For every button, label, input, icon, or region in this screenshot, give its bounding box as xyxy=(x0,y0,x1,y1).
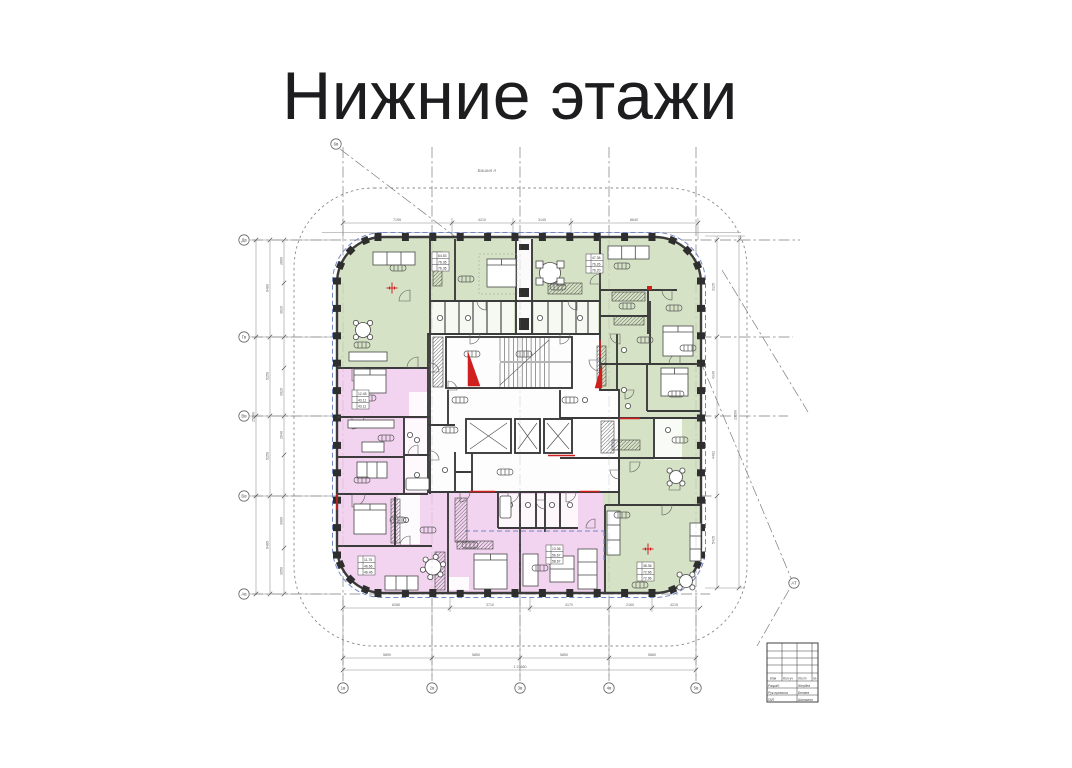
svg-text:Беляев: Беляев xyxy=(798,691,809,695)
svg-text:2160: 2160 xyxy=(626,603,634,607)
svg-text:Шаталов: Шаталов xyxy=(798,698,813,702)
svg-text:4462: 4462 xyxy=(712,451,716,459)
svg-text:58.67: 58.67 xyxy=(552,560,561,564)
svg-text:5880: 5880 xyxy=(648,653,656,657)
svg-text:6485: 6485 xyxy=(266,541,270,549)
svg-text:13.36: 13.36 xyxy=(552,547,561,551)
svg-text:25640: 25640 xyxy=(252,412,256,422)
svg-text:3620: 3620 xyxy=(280,306,284,314)
svg-text:76.26: 76.26 xyxy=(592,262,601,266)
svg-text:1 23660: 1 23660 xyxy=(514,665,527,669)
svg-text:56.67: 56.67 xyxy=(552,553,561,557)
svg-text:Ав: Ав xyxy=(241,592,247,597)
svg-text:5250: 5250 xyxy=(266,372,270,380)
svg-text:4в: 4в xyxy=(607,686,612,691)
svg-text:43.11: 43.11 xyxy=(358,398,366,402)
svg-text:4210: 4210 xyxy=(478,218,486,222)
svg-text:4215: 4215 xyxy=(670,603,678,607)
svg-text:76.36: 76.36 xyxy=(438,267,447,271)
svg-text:11.76: 11.76 xyxy=(364,558,372,562)
svg-text:5415: 5415 xyxy=(712,536,716,544)
svg-text:4170: 4170 xyxy=(565,603,573,607)
svg-text:5890: 5890 xyxy=(383,653,391,657)
svg-text:76.20: 76.20 xyxy=(592,269,601,273)
svg-text:46.46: 46.46 xyxy=(364,571,373,575)
svg-text:5850: 5850 xyxy=(472,653,480,657)
svg-text:8640: 8640 xyxy=(630,218,638,222)
svg-text:Вв: Вв xyxy=(241,414,247,419)
svg-text:46.66: 46.66 xyxy=(364,564,373,568)
svg-text:12.45: 12.45 xyxy=(358,392,367,396)
svg-text:3900: 3900 xyxy=(280,517,284,525)
svg-text:5850: 5850 xyxy=(560,653,568,657)
svg-text:6в: 6в xyxy=(334,142,339,147)
svg-text:Жердев: Жердев xyxy=(797,684,810,688)
svg-text:3в: 3в xyxy=(518,686,523,691)
svg-text:Рук.проекта: Рук.проекта xyxy=(768,691,788,695)
svg-text:64.53: 64.53 xyxy=(438,254,447,258)
svg-text:3920: 3920 xyxy=(280,388,284,396)
svg-text:Изм: Изм xyxy=(770,677,777,681)
svg-text:Гв: Гв xyxy=(242,335,247,340)
svg-text:2640: 2640 xyxy=(280,431,284,439)
svg-text:2860: 2860 xyxy=(280,257,284,265)
svg-text:3710: 3710 xyxy=(486,603,494,607)
svg-text:Башня А: Башня А xyxy=(478,168,497,173)
svg-text:3125: 3125 xyxy=(712,283,716,291)
svg-text:47.36: 47.36 xyxy=(592,256,601,260)
svg-text:ГАП: ГАП xyxy=(768,698,775,702)
svg-text:Кол.уч: Кол.уч xyxy=(783,677,793,681)
svg-text:6480: 6480 xyxy=(266,284,270,292)
svg-text:4140: 4140 xyxy=(712,371,716,379)
svg-text:Лист: Лист xyxy=(797,677,807,681)
svg-text:23260: 23260 xyxy=(734,410,738,420)
svg-text:3050: 3050 xyxy=(280,567,284,575)
svg-text:АТ: АТ xyxy=(791,581,797,586)
svg-text:Дв: Дв xyxy=(241,238,247,243)
svg-text:1в: 1в xyxy=(341,686,346,691)
svg-text:6285: 6285 xyxy=(392,603,400,607)
svg-text:72.96: 72.96 xyxy=(643,577,652,581)
svg-text:5250: 5250 xyxy=(266,452,270,460)
svg-text:2в: 2в xyxy=(430,686,435,691)
svg-text:Разраб.: Разраб. xyxy=(768,684,780,688)
svg-text:76.36: 76.36 xyxy=(438,260,447,264)
svg-text:7195: 7195 xyxy=(393,218,401,222)
svg-text:72.96: 72.96 xyxy=(643,570,652,574)
svg-text:43.11: 43.11 xyxy=(358,405,366,409)
svg-text:5в: 5в xyxy=(694,686,699,691)
svg-text:№: № xyxy=(813,677,817,681)
svg-text:38.36: 38.36 xyxy=(643,564,652,568)
svg-text:Бв: Бв xyxy=(241,494,247,499)
svg-text:3145: 3145 xyxy=(538,218,546,222)
